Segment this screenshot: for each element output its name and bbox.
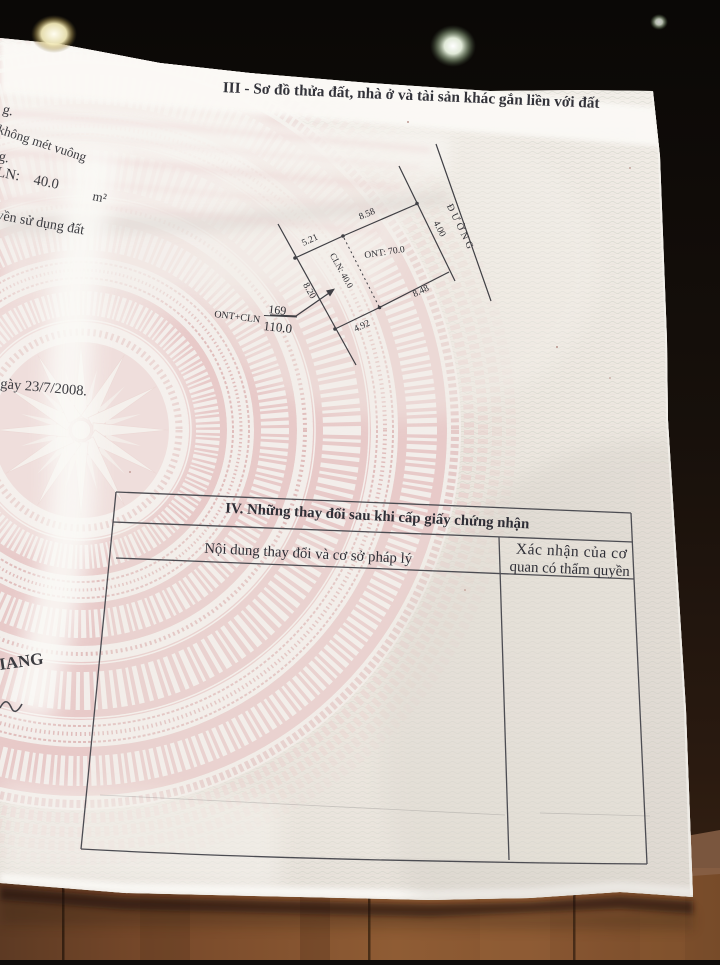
svg-text:m²: m² [91,188,108,205]
svg-text:LN:: LN: [0,164,21,184]
svg-text:110.0: 110.0 [263,318,293,336]
